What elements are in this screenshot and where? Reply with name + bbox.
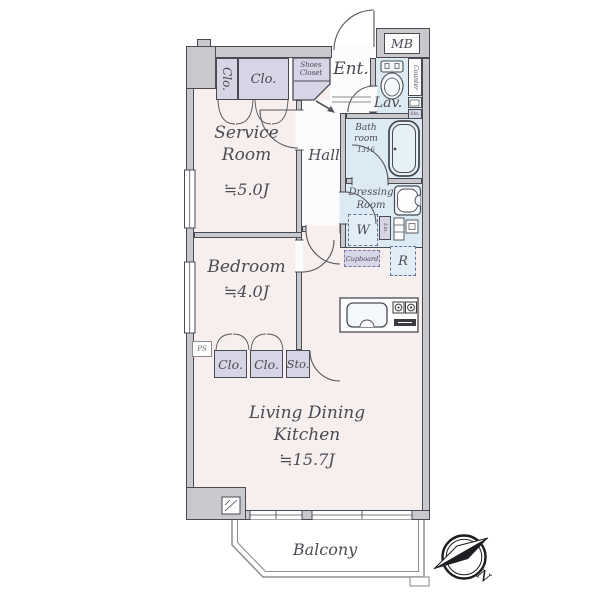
ldk-size: ≒15.7J — [232, 450, 382, 471]
dressing-room-label: Dressing Room — [342, 187, 400, 212]
entrance-label: Ent. — [328, 58, 374, 80]
shoes-closet-label: Shoes Closet — [292, 61, 330, 78]
utility-meter-icon — [222, 497, 240, 514]
compass: N — [434, 536, 494, 588]
service-room-label: Service Room — [199, 122, 294, 166]
service-room-size: ≒5.0J — [199, 180, 294, 201]
bathroom-label: Bath room — [347, 123, 385, 145]
bathtub-icon — [389, 121, 419, 176]
bedroom-label: Bedroom — [199, 256, 294, 278]
lavatory-label: Lav. — [368, 94, 408, 112]
bedroom-size: ≒4.0J — [199, 282, 294, 303]
ldk-label: Living Dining Kitchen — [232, 402, 382, 446]
floor-plan: Clo. Clo. Clo. Clo. Sto. W Lin. R Cupboa… — [0, 0, 600, 600]
balcony-label: Balcony — [265, 540, 385, 561]
bathroom-size: 1316 — [347, 146, 385, 155]
kitchen-icon — [340, 298, 418, 332]
hall-label: Hall — [298, 146, 350, 166]
plan-linework: N — [0, 0, 600, 600]
